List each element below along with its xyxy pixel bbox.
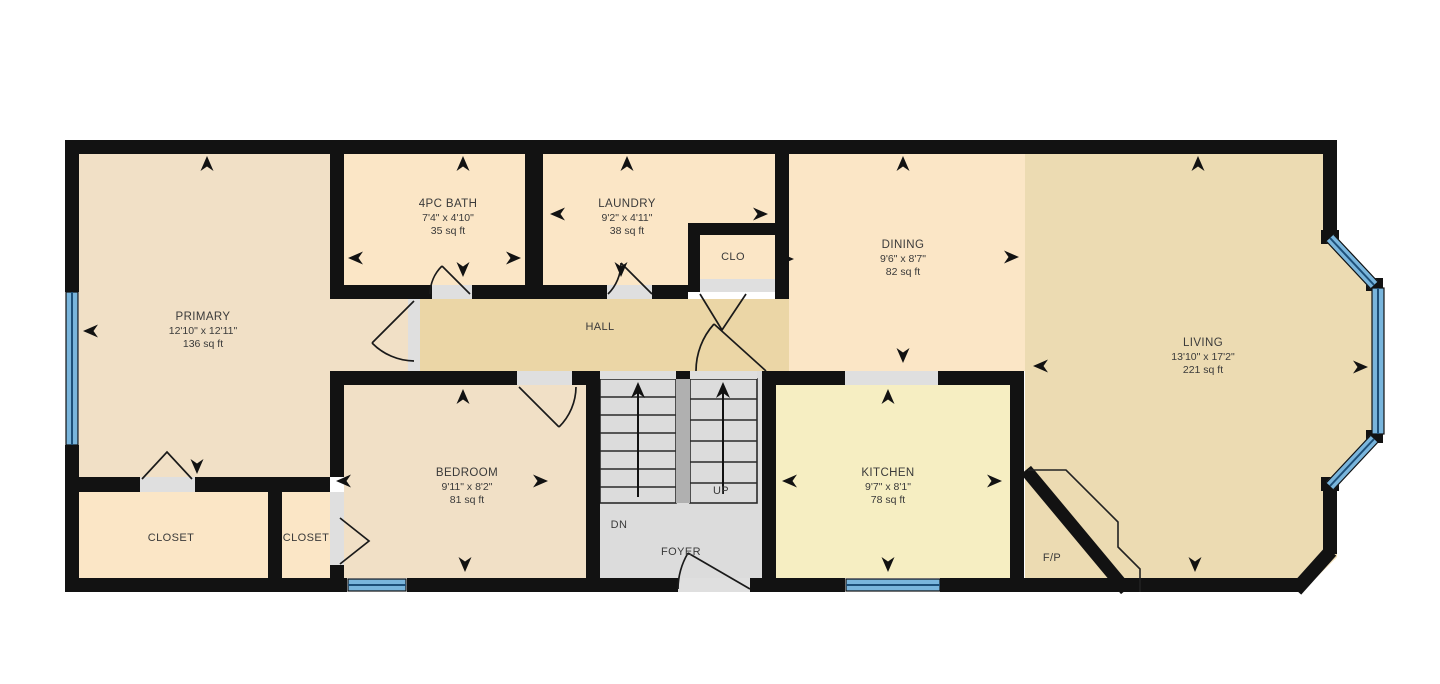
threshold-closet2-door <box>330 492 344 565</box>
wall-stairs-right <box>762 371 776 578</box>
threshold-stair-up <box>690 371 757 379</box>
threshold-bedroom-door <box>517 371 572 385</box>
window-primary-left <box>66 292 78 445</box>
fireplace-label: F/P <box>1043 551 1061 565</box>
wall-left-upper <box>65 140 79 292</box>
threshold-kitchen-opening <box>845 371 938 385</box>
room-label-laundry: LAUNDRY 9'2" x 4'11" 38 sq ft <box>598 197 656 239</box>
hall-label: HALL <box>585 320 614 334</box>
foyer-label: FOYER <box>661 545 701 559</box>
threshold-closet1-door <box>140 477 195 492</box>
room-label-kitchen: KITCHEN 9'7" x 8'1" 78 sq ft <box>861 466 914 508</box>
wall-bath-laundry <box>525 140 543 285</box>
clo-label: CLO <box>721 250 745 264</box>
window-bedroom-bottom <box>348 579 406 591</box>
wall-bath-bottom <box>472 285 543 299</box>
closet1-label: CLOSET <box>148 531 194 545</box>
room-laundry-floor <box>543 154 775 285</box>
wall-primary-closet <box>65 477 140 492</box>
wall-laundry-bottom <box>543 285 607 299</box>
wall-kitchen-top <box>938 371 1024 385</box>
room-label-living: LIVING 13'10" x 17'2" 221 sq ft <box>1171 336 1234 378</box>
wall-primary-closet <box>195 477 330 492</box>
threshold-front-door <box>678 578 750 592</box>
wall-top <box>65 140 1337 154</box>
threshold-clo-door <box>700 279 775 292</box>
closet2-label: CLOSET <box>283 531 329 545</box>
wall-left-lower <box>65 445 79 592</box>
wall-primary-bedroom <box>330 385 344 477</box>
wall-bottom <box>750 578 845 592</box>
hall-floor <box>420 299 789 371</box>
stairs-up-label: UP <box>713 484 729 498</box>
wall-bottom <box>407 578 678 592</box>
wall-closet-divider <box>268 492 282 578</box>
wall-stair-divider-top <box>676 371 690 379</box>
wall-stairs-left <box>586 371 600 578</box>
wall-kitchen-top <box>762 371 845 385</box>
wall-bottom <box>65 578 347 592</box>
wall-hall-bedroom <box>330 371 517 385</box>
wall-closet2-stub <box>330 565 344 578</box>
wall-right-upper <box>1323 140 1337 240</box>
room-label-bath: 4PC BATH 7'4" x 4'10" 35 sq ft <box>419 197 478 239</box>
threshold-stair-dn <box>600 371 676 379</box>
threshold-bath-door <box>432 285 472 299</box>
room-label-dining: DINING 9'6" x 8'7" 82 sq ft <box>880 238 926 280</box>
stair-divider <box>676 379 690 503</box>
primary-vestibule <box>330 299 408 371</box>
wall-bath-bottom <box>330 285 432 299</box>
stairs-dn-label: DN <box>611 518 628 532</box>
wall-primary-bath <box>330 140 344 285</box>
room-label-primary: PRIMARY 12'10" x 12'11" 136 sq ft <box>169 310 238 352</box>
wall-laundry-dining <box>775 140 789 299</box>
floorplan-canvas: PRIMARY 12'10" x 12'11" 136 sq ft 4PC BA… <box>0 0 1440 684</box>
bay-window-middle <box>1372 288 1384 434</box>
room-label-bedroom: BEDROOM 9'11" x 8'2" 81 sq ft <box>436 466 498 508</box>
wall-laundry-bottom <box>652 285 688 299</box>
wall-kitchen-right <box>1010 385 1024 578</box>
window-kitchen-bottom <box>846 579 940 591</box>
wall-clo-top <box>688 223 775 235</box>
